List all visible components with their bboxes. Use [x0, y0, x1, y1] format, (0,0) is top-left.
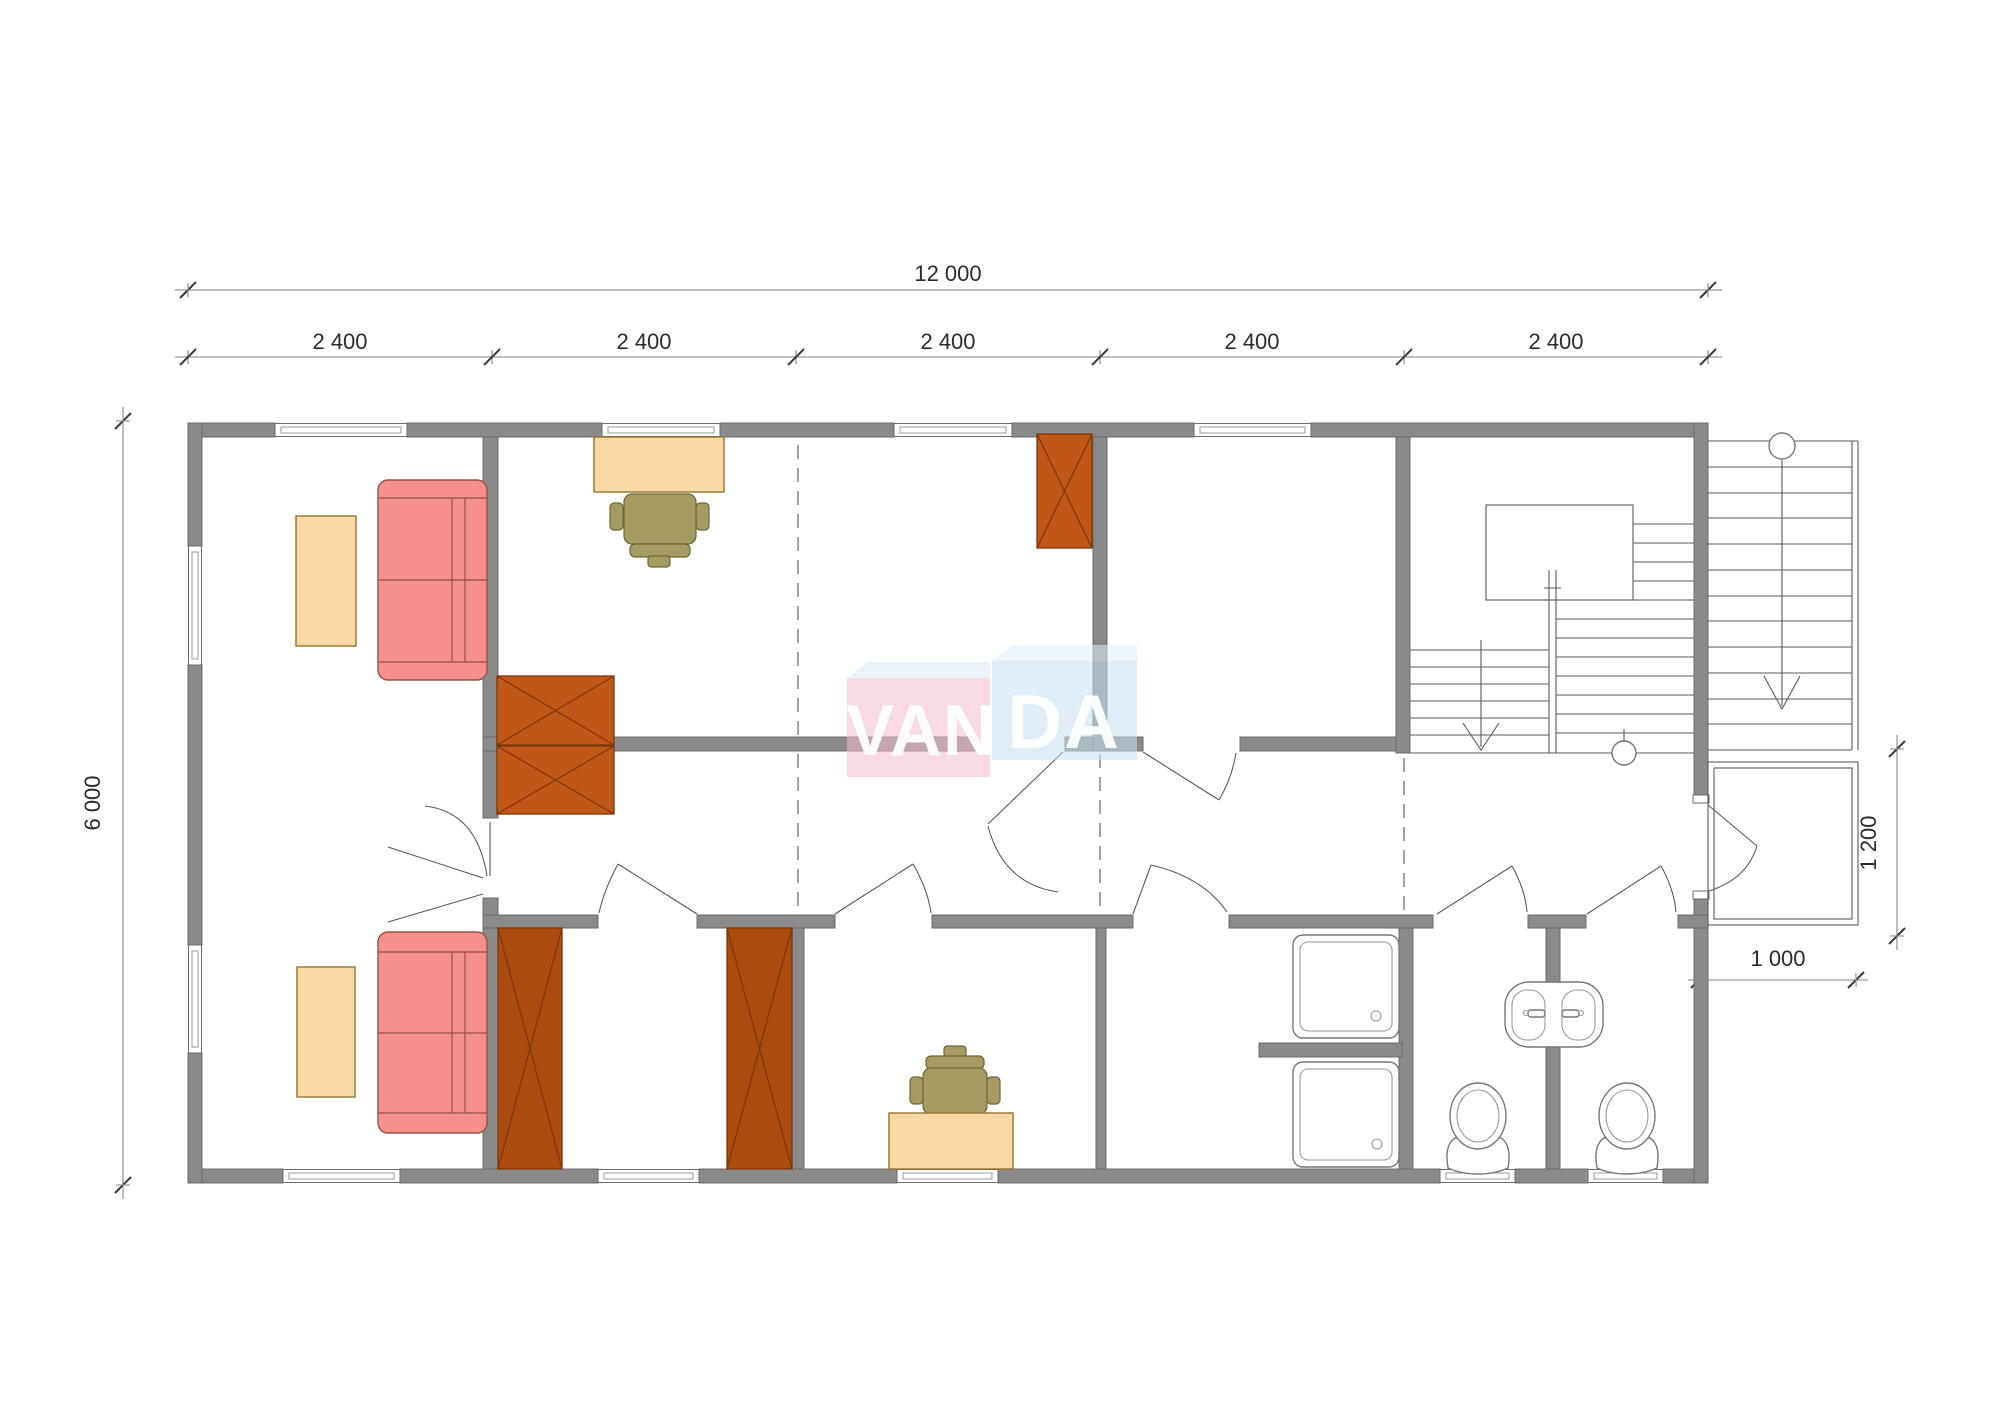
external-down-arrow	[1764, 460, 1800, 709]
window-top-living	[275, 424, 407, 437]
wall-right-1	[1694, 423, 1708, 802]
dimension-modules: 2 400 2 400 2 400 2 400 2 400	[175, 329, 1722, 365]
stairs-internal	[1410, 505, 1694, 765]
wall-top-5	[1311, 423, 1708, 437]
stairs-down-arrow	[1463, 640, 1499, 750]
door-bedroom	[1143, 752, 1236, 800]
dim-module-2: 2 400	[616, 329, 671, 354]
stairs-void-outline	[1486, 505, 1633, 600]
sofa-top	[378, 480, 487, 680]
external-treads	[1708, 467, 1852, 724]
wall-top-3	[720, 423, 894, 437]
logo-bevel-left	[847, 662, 990, 678]
living-room-furniture	[296, 480, 487, 1133]
dimension-annex-depth: 1 200	[1856, 735, 1905, 950]
door-study	[835, 864, 931, 914]
wall-bottom-5	[1515, 1169, 1588, 1183]
wall-left-2	[188, 665, 202, 945]
dim-total-height-label: 6 000	[80, 775, 105, 830]
stairs-external	[1708, 433, 1858, 750]
external-stair-edge	[1852, 441, 1858, 750]
wardrobe-dressing-right	[727, 928, 792, 1169]
window-top-office-1	[602, 424, 720, 437]
porch	[1708, 762, 1858, 925]
external-stair-circle	[1769, 433, 1795, 459]
dim-module-1: 2 400	[312, 329, 367, 354]
wall-stairwell-left	[1396, 437, 1410, 753]
office-desk	[594, 437, 724, 492]
wardrobe-dressing-left	[498, 928, 562, 1169]
wall-right-2	[1694, 893, 1708, 1183]
door-wc-1	[1437, 866, 1527, 914]
door-jamb-top	[1693, 795, 1709, 803]
office-chair	[610, 494, 709, 567]
stairs-left-treads	[1410, 650, 1549, 735]
logo-text-van: VAN	[846, 691, 996, 771]
dimension-total-width: 12 000	[175, 261, 1722, 298]
door-exterior-porch	[1708, 805, 1757, 891]
study-furniture	[889, 1046, 1013, 1169]
wardrobe-office-double	[497, 676, 614, 814]
wall-corridor-bottom-3	[932, 915, 1133, 928]
wall-bedroom-bottom	[1240, 737, 1410, 751]
door-wc-2	[1587, 866, 1676, 914]
floor-plan-drawing: 12 000 2 400 2 400 2 400 2 400 2 400 6 0…	[0, 0, 2000, 1423]
wall-corridor-bottom-6	[1678, 915, 1708, 928]
window-bottom-dressing	[598, 1170, 699, 1183]
wall-corridor-bottom-4	[1229, 915, 1433, 928]
window-top-bedroom	[1194, 424, 1311, 437]
watermark-logo: VAN DA	[846, 645, 1137, 777]
dim-annex-depth-label: 1 200	[1856, 815, 1881, 870]
toilet-1	[1447, 1083, 1509, 1174]
dressing-room-furniture	[498, 928, 792, 1169]
wall-corridor-bottom-1	[483, 915, 598, 928]
logo-bevel-right	[992, 645, 1137, 661]
dim-module-4: 2 400	[1224, 329, 1279, 354]
stairs-rail	[1544, 570, 1561, 753]
wall-shower-stub	[1259, 1043, 1402, 1057]
wall-bottom-4	[998, 1169, 1440, 1183]
wall-wc-partition	[1546, 928, 1560, 1169]
coffee-table-top	[296, 516, 356, 646]
shower-tray-1	[1293, 935, 1399, 1038]
study-desk	[889, 1113, 1013, 1169]
dimension-annex-width: 1 000	[1688, 946, 1868, 988]
floor-plan-sheet: 12 000 2 400 2 400 2 400 2 400 2 400 6 0…	[0, 0, 2000, 1423]
wall-top-2	[407, 423, 602, 437]
wall-bottom-3	[699, 1169, 897, 1183]
study-chair	[910, 1046, 1000, 1114]
shower-tray-2	[1293, 1062, 1399, 1167]
logo-text-da: DA	[1007, 680, 1121, 765]
door-jamb-bottom	[1693, 891, 1709, 899]
wall-corridor-bottom-2	[697, 915, 835, 928]
sofa-bottom	[378, 932, 487, 1133]
stairs-right-treads	[1556, 600, 1694, 733]
stairs-upper-treads	[1633, 524, 1694, 581]
door-dressing	[599, 864, 697, 914]
dim-module-5: 2 400	[1528, 329, 1583, 354]
window-top-office-2	[894, 424, 1012, 437]
coffee-table-bottom	[297, 967, 355, 1097]
window-left-1	[189, 546, 202, 665]
wall-left-1	[188, 423, 202, 546]
wall-corridor-bottom-5	[1528, 915, 1586, 928]
door-shower-room	[1133, 865, 1227, 914]
dimension-total-height: 6 000	[80, 407, 131, 1199]
wall-left-3	[188, 1053, 202, 1183]
door-living	[388, 806, 490, 922]
window-left-2	[189, 945, 202, 1053]
dim-annex-width-label: 1 000	[1750, 946, 1805, 971]
wall-study-right	[1096, 928, 1106, 1169]
double-sink	[1505, 982, 1603, 1047]
dim-module-3: 2 400	[920, 329, 975, 354]
toilet-2	[1596, 1083, 1658, 1174]
door-office	[988, 752, 1063, 892]
window-bottom-living	[283, 1170, 400, 1183]
wall-bottom-2	[400, 1169, 598, 1183]
dim-total-width-label: 12 000	[914, 261, 981, 286]
wardrobe-office-right	[1037, 434, 1092, 548]
window-bottom-study	[897, 1170, 998, 1183]
stairs-newel-circle	[1612, 741, 1636, 765]
